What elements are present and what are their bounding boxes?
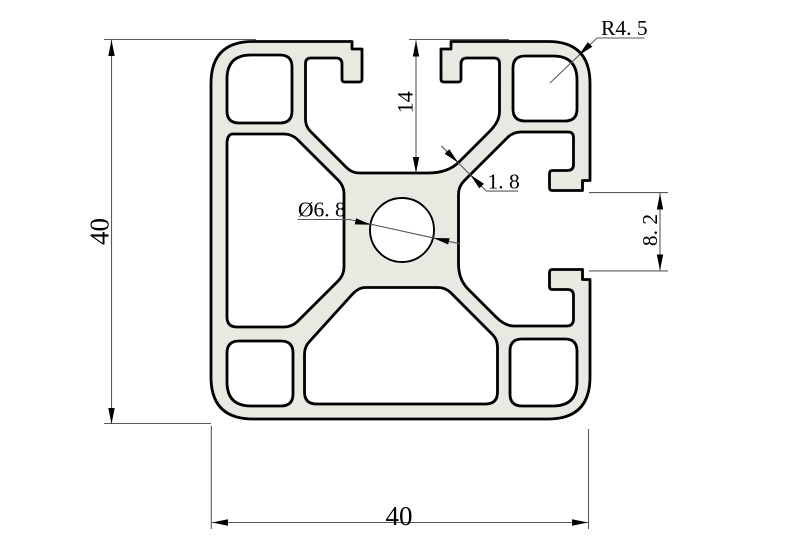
svg-text:R4. 5: R4. 5 bbox=[601, 16, 648, 40]
svg-text:1. 8: 1. 8 bbox=[488, 170, 520, 194]
svg-text:14: 14 bbox=[393, 91, 418, 113]
svg-text:40: 40 bbox=[85, 218, 115, 245]
svg-text:8. 2: 8. 2 bbox=[638, 214, 662, 246]
svg-text:Ø6. 8: Ø6. 8 bbox=[298, 198, 346, 222]
svg-text:40: 40 bbox=[386, 501, 413, 531]
